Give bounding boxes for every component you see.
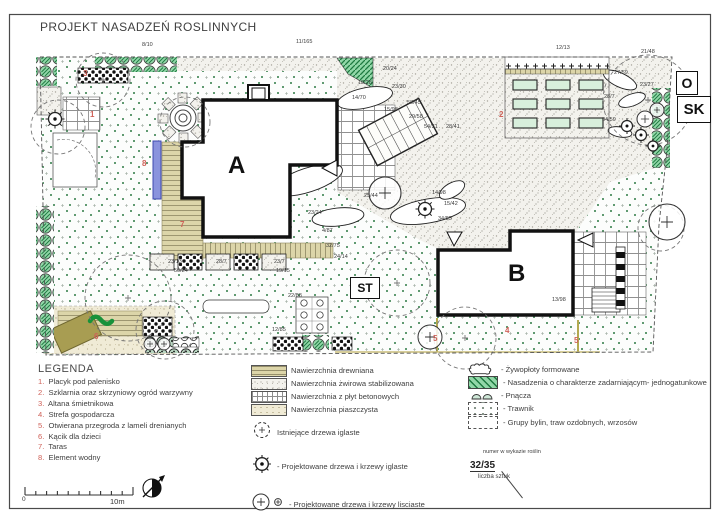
building-a-label: A	[228, 152, 245, 180]
scale-start-label: 0	[22, 496, 26, 503]
legend-item-label: Kącik dla dzieci	[46, 432, 100, 441]
zone-marker-4: 4	[505, 326, 509, 335]
legend-item-label: Taras	[46, 442, 67, 451]
plant-label: 12/13	[556, 45, 570, 51]
gravel-swatch	[251, 378, 287, 390]
legend-surface-label: Nawierzchnia drewniana	[291, 366, 374, 376]
plant-label: 23/13	[168, 259, 182, 265]
plant-label: 12/85	[272, 327, 286, 333]
legend-area-label: - Nasadzenia o charakterze zadarniającym…	[503, 378, 707, 388]
plant-label: 54/31	[424, 124, 438, 130]
plant-label: 58/45	[407, 100, 421, 106]
st-marker: ST	[350, 277, 380, 299]
legend-area-row: - Nasadzenia o charakterze zadarniającym…	[468, 376, 714, 389]
legend-item-label: Szklarnia oraz skrzyniowy ogród warzywny	[46, 388, 192, 397]
legend-surface-label: Nawierzchnia żwirowa stabilizowana	[291, 379, 414, 389]
legend-areas: - Żywopłoty formowane- Nasadzenia o char…	[468, 364, 714, 430]
plant-label: 19/28	[358, 80, 372, 86]
page-title: PROJEKT NASADZEŃ ROSLINNYCH	[40, 20, 257, 34]
legend-numbered: LEGENDA 1. Placyk pod palenisko2. Szklar…	[38, 363, 250, 464]
plant-label: 23/24	[308, 210, 322, 216]
plant-label: 14/70	[352, 95, 366, 101]
plant-label: 25/44	[364, 193, 378, 199]
legend-item: 8. Element wodny	[38, 453, 250, 464]
zone-marker-3: 3	[83, 69, 87, 78]
scale-bar	[25, 487, 133, 495]
plant-label: 28/41	[446, 124, 460, 130]
pot-grid	[296, 297, 328, 333]
zone-marker-5: 5	[433, 334, 437, 343]
sk-marker: SK	[677, 96, 711, 123]
fire-pit	[158, 93, 208, 143]
zone-marker-8: 8	[142, 159, 146, 168]
legend-area-row: - Trawnik	[468, 402, 714, 415]
legend-item-number: 3.	[38, 399, 44, 408]
plant-label: 8/10	[142, 42, 153, 48]
legend-item-label: Strefa gospodarcza	[46, 410, 114, 419]
proposed-conifer-icon	[251, 454, 273, 479]
plant-label: 24/14	[334, 254, 348, 260]
plant-label: 14/98	[432, 190, 446, 196]
garden-plan-sheet: PROJEKT NASADZEŃ ROSLINNYCH A B ST O SK …	[0, 0, 720, 525]
wood-swatch	[251, 365, 287, 377]
legend-item: 4. Strefa gospodarcza	[38, 410, 250, 421]
legend-surface-label: Nawierzchnia z płyt betonowych	[291, 392, 399, 402]
plant-code-caption-bottom: liczba sztuk	[478, 473, 600, 480]
plant-label: 32/75	[326, 243, 340, 249]
plant-code-example: 32/35	[470, 461, 495, 472]
legend-tree-label: - Projektowane drzewa i krzewy iglaste	[277, 462, 408, 472]
legend-area-row: - Grupy bylin, traw ozdobnych, wrzosów	[468, 416, 714, 429]
plant-label: 28/7	[604, 94, 615, 100]
trawnik-swatch	[468, 402, 498, 415]
legend-area-label: - Grupy bylin, traw ozdobnych, wrzosów	[503, 418, 637, 428]
zone-marker-2: 2	[499, 110, 503, 119]
zone-marker-6: 6	[94, 332, 98, 341]
legend-item-label: Otwierana przegroda z lameli drenianych	[46, 421, 186, 430]
legend-item: 1. Placyk pod palenisko	[38, 377, 250, 388]
legend-surfaces-trees: Nawierzchnia drewnianaNawierzchnia żwiro…	[251, 365, 467, 517]
plant-label: 23/27	[640, 82, 654, 88]
legend-item-number: 5.	[38, 421, 44, 430]
legend-item-number: 7.	[38, 442, 44, 451]
legend-area-row: - Żywopłoty formowane	[468, 364, 714, 375]
legend-heading: LEGENDA	[38, 363, 250, 375]
hedge-swatch	[468, 364, 496, 375]
zone-marker-7: 7	[180, 220, 184, 229]
legend-item-number: 8.	[38, 453, 44, 462]
legend-area-label: - Trawnik	[503, 404, 534, 414]
legend-item-label: Altana śmietnikowa	[46, 399, 113, 408]
legend-item: 3. Altana śmietnikowa	[38, 399, 250, 410]
plant-code-key: numer w wykazie roślin 32/35 liczba sztu…	[470, 449, 600, 480]
legend-tree-label: - Projektowane drzewa i krzewy lisciaste	[289, 500, 425, 510]
plant-code-caption-top: numer w wykazie roślin	[483, 449, 600, 455]
legend-item-number: 1.	[38, 377, 44, 386]
legend-tree-label: Istniejące drzewa iglaste	[277, 428, 360, 438]
legend-tree-row: - Projektowane drzewa i krzewy lisciaste	[251, 492, 467, 517]
o-marker: O	[676, 71, 698, 95]
zone-marker-1: 1	[90, 110, 94, 119]
grid-swatch	[251, 391, 287, 403]
legend-area-label: - Żywopłoty formowane	[501, 365, 580, 375]
legend-area-label: - Pnącza	[501, 391, 531, 401]
legend-item: 5. Otwierana przegroda z lameli dreniany…	[38, 421, 250, 432]
legend-item-label: Placyk pod palenisko	[46, 377, 119, 386]
legend-item: 7. Taras	[38, 442, 250, 453]
plant-label: 34/59	[602, 117, 616, 123]
legend-item-label: Element wodny	[46, 453, 100, 462]
plant-label: 23/30	[392, 84, 406, 90]
sand-swatch	[251, 404, 287, 416]
building-b-label: B	[508, 260, 525, 288]
north-arrow	[143, 475, 165, 497]
plant-label: 29/58	[409, 114, 423, 120]
plant-label: 34/85	[438, 216, 452, 222]
plant-label: 4/87	[322, 228, 333, 234]
pnacza-swatch	[468, 390, 496, 401]
plant-label: 19/15	[276, 268, 290, 274]
plant-label: 11/165	[296, 39, 312, 45]
legend-area-row: - Pnącza	[468, 390, 714, 401]
plant-label: 21/48	[641, 49, 655, 55]
legend-tree-row: - Projektowane drzewa i krzewy iglaste	[251, 454, 467, 479]
plant-label: 20/24	[383, 66, 397, 72]
scale-end-label: 10m	[110, 497, 125, 506]
legend-item-number: 2.	[38, 388, 44, 397]
plant-label: 28/7	[216, 259, 227, 265]
plant-label: 50/24	[174, 268, 188, 274]
water-feature	[153, 141, 161, 199]
legend-surface-row: Nawierzchnia z płyt betonowych	[251, 391, 467, 403]
legend-surface-row: Nawierzchnia piaszczysta	[251, 404, 467, 416]
legend-item: 2. Szklarnia oraz skrzyniowy ogród warzy…	[38, 388, 250, 399]
plant-label: 13/98	[552, 297, 566, 303]
legend-tree-row: Istniejące drzewa iglaste	[251, 420, 467, 445]
plant-label: 27/59	[614, 70, 628, 76]
plant-label: 15/98	[384, 107, 398, 113]
legend-item-number: 6.	[38, 432, 44, 441]
legend-item: 6. Kącik dla dzieci	[38, 432, 250, 443]
legend-surface-label: Nawierzchnia piaszczysta	[291, 405, 378, 415]
legend-surface-row: Nawierzchnia drewniana	[251, 365, 467, 377]
legend-item-number: 4.	[38, 410, 44, 419]
proposed-deciduous-icon	[251, 492, 285, 517]
zone-marker-5: 5	[574, 336, 578, 345]
grupy-swatch	[468, 416, 498, 429]
plant-label: 23/7	[274, 259, 285, 265]
plant-label: 22/88	[288, 293, 302, 299]
path-pill	[203, 300, 269, 313]
greenhatch-swatch	[468, 376, 498, 389]
legend-surface-row: Nawierzchnia żwirowa stabilizowana	[251, 378, 467, 390]
plant-label: 15/42	[444, 201, 458, 207]
existing-conifer-icon	[251, 420, 273, 445]
